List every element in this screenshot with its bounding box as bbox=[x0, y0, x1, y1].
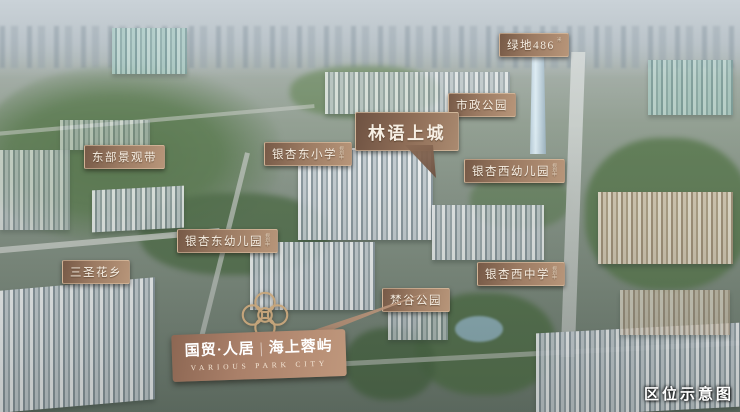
map-label-yinxing-west-middle: 银杏西中学 规划中 bbox=[477, 262, 565, 286]
project-name-cn: 国贸·人居|海上蓉屿 bbox=[185, 339, 334, 361]
map-label-text: 银杏西中学 bbox=[485, 266, 550, 282]
project-name-left: 国贸·人居 bbox=[185, 341, 256, 359]
map-label-yinxing-west-kindergarten: 银杏西幼儿园 规划中 bbox=[464, 159, 565, 183]
map-label-yinxing-east-kindergarten: 银杏东幼儿园 规划中 bbox=[177, 229, 278, 253]
project-name-divider: | bbox=[254, 341, 269, 357]
map-label-text: 梵谷公园 bbox=[390, 292, 442, 308]
map-label-text: 银杏西幼儿园 bbox=[472, 163, 550, 179]
map-label-footnote: 规划中 bbox=[339, 146, 344, 160]
map-type-caption: 区位示意图 bbox=[644, 383, 734, 404]
map-label-text: 东部景观带 bbox=[92, 149, 157, 165]
project-badge: 国贸·人居|海上蓉屿 VARIOUS PARK CITY bbox=[171, 329, 347, 382]
map-label-footnote: 米 bbox=[557, 37, 562, 42]
map-label-text: 银杏东幼儿园 bbox=[185, 233, 263, 249]
map-label-text: 绿地486 bbox=[507, 37, 555, 53]
map-label-text: 林语上城 bbox=[368, 119, 446, 144]
map-label-yinxing-east-primary: 银杏东小学 规划中 bbox=[264, 142, 352, 166]
map-label-text: 市政公园 bbox=[456, 97, 508, 113]
map-label-sansheng-flower-town: 三圣花乡 bbox=[62, 260, 130, 284]
map-label-east-landscape-belt: 东部景观带 bbox=[84, 145, 165, 169]
map-label-footnote: 规划中 bbox=[552, 266, 557, 280]
location-map: 绿地486 米 市政公园 林语上城 东部景观带 银杏东小学 规划中 银杏西幼儿园… bbox=[0, 0, 740, 412]
project-name-en: VARIOUS PARK CITY bbox=[190, 358, 328, 372]
map-label-footnote: 规划中 bbox=[265, 233, 270, 247]
map-label-fangu-park: 梵谷公园 bbox=[382, 288, 450, 312]
photo-vignette bbox=[0, 0, 740, 412]
project-name-right: 海上蓉屿 bbox=[268, 339, 333, 357]
map-label-footnote: 规划中 bbox=[552, 163, 557, 177]
map-label-text: 三圣花乡 bbox=[70, 264, 122, 280]
map-label-greenland-tower: 绿地486 米 bbox=[499, 33, 569, 57]
map-label-text: 银杏东小学 bbox=[272, 146, 337, 162]
